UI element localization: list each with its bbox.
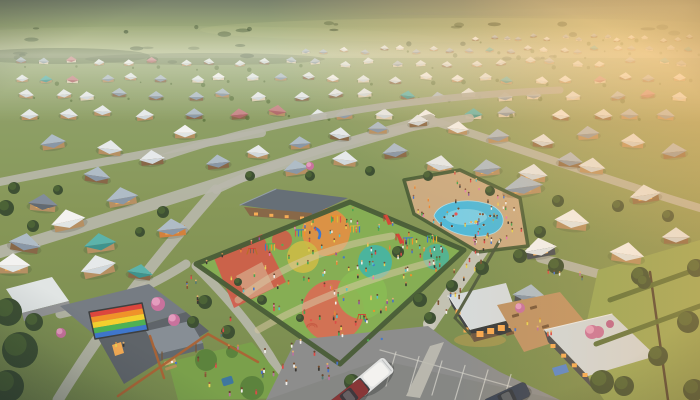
lighting-overlays [0, 0, 700, 400]
scene-canvas [0, 0, 700, 400]
aerial-neighborhood-illustration [0, 0, 700, 400]
